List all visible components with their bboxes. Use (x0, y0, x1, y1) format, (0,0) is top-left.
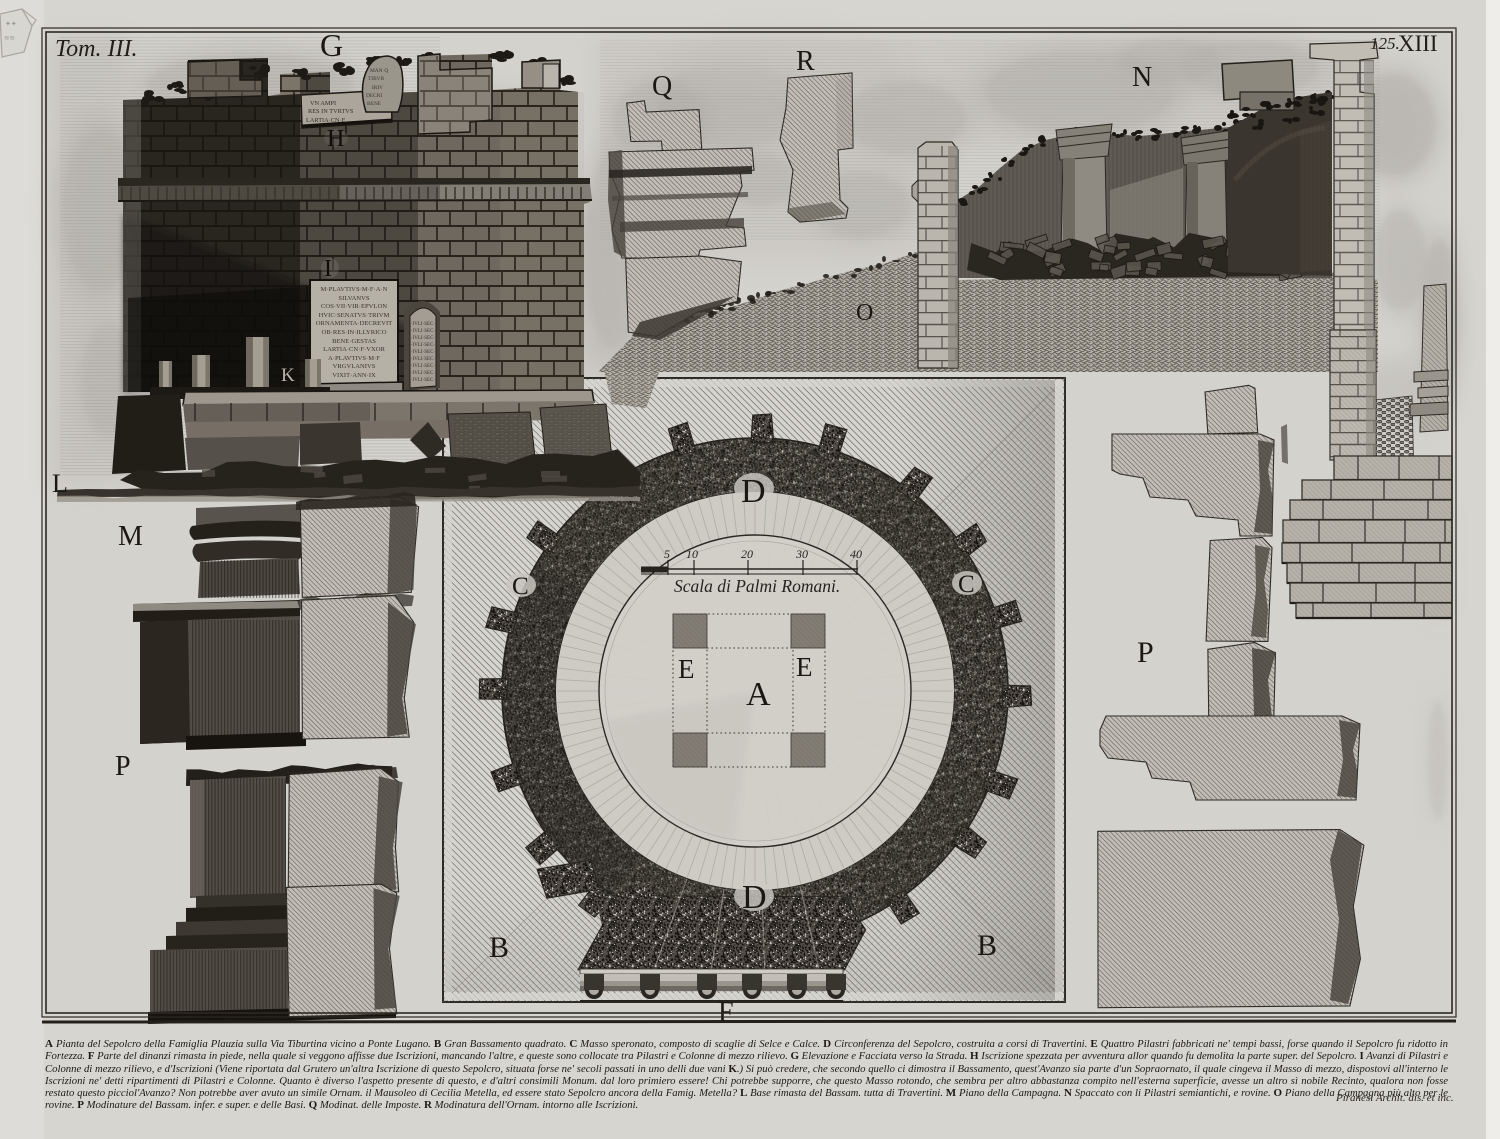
svg-text:M: M (118, 521, 143, 552)
svg-text:SILVANVS: SILVANVS (338, 295, 369, 302)
svg-text:E: E (678, 654, 695, 684)
svg-text:M·PLAVTIVS·M·F·A·N: M·PLAVTIVS·M·F·A·N (321, 286, 388, 293)
svg-text:IRIV: IRIV (372, 85, 383, 91)
svg-text:P: P (115, 751, 131, 782)
svg-text:D: D (742, 879, 767, 916)
svg-text:·IVLI·SEC·: ·IVLI·SEC· (411, 336, 435, 341)
svg-text:·IVLI·SEC·: ·IVLI·SEC· (411, 329, 435, 334)
svg-text:10: 10 (686, 547, 698, 561)
svg-text:·IVLI·SEC·: ·IVLI·SEC· (411, 343, 435, 348)
svg-text:B: B (977, 929, 997, 962)
svg-text:Tom. III.: Tom. III. (55, 36, 137, 62)
svg-text:LARTIA·CN·F·VXOR: LARTIA·CN·F·VXOR (323, 346, 385, 353)
svg-text:≋≋: ≋≋ (4, 35, 15, 42)
svg-text:HVIC·SENATVS·TRIVM: HVIC·SENATVS·TRIVM (319, 312, 390, 319)
svg-text:VIXIT·ANN·IX: VIXIT·ANN·IX (332, 372, 376, 379)
svg-text:E: E (796, 652, 813, 682)
svg-text:OB·RES·IN·ILLYRICO: OB·RES·IN·ILLYRICO (322, 329, 387, 336)
svg-text:20: 20 (741, 547, 753, 561)
svg-text:DECRI: DECRI (366, 93, 382, 99)
svg-text:30: 30 (795, 547, 808, 561)
svg-text:TIBVR: TIBVR (368, 76, 385, 82)
svg-text:·IVLI·SEC·: ·IVLI·SEC· (411, 322, 435, 327)
svg-text:·IVLI·SEC·: ·IVLI·SEC· (411, 378, 435, 383)
svg-text:XIII: XIII (1398, 31, 1438, 56)
svg-text:C: C (512, 573, 529, 600)
svg-text:P: P (1137, 636, 1154, 669)
svg-text:✦✦: ✦✦ (5, 20, 17, 28)
svg-text:L: L (52, 469, 68, 498)
svg-text:A: A (746, 676, 771, 713)
svg-text:125.: 125. (1370, 34, 1400, 53)
svg-text:VN AMPI: VN AMPI (310, 100, 336, 107)
svg-text:BENE: BENE (367, 101, 382, 107)
svg-text:R: R (796, 46, 815, 77)
svg-text:K: K (281, 365, 295, 386)
svg-text:ORNAMENTA·DECREVIT: ORNAMENTA·DECREVIT (316, 320, 392, 327)
svg-text:·IVLI·SEC·: ·IVLI·SEC· (411, 357, 435, 362)
svg-text:C: C (958, 571, 975, 598)
svg-text:RES IN TVRTVS: RES IN TVRTVS (308, 108, 354, 115)
svg-text:A·PLAVTIVS·M·F: A·PLAVTIVS·M·F (328, 355, 380, 362)
svg-text:MAN·Q: MAN·Q (370, 68, 388, 74)
svg-text:VRGVLANIVS: VRGVLANIVS (333, 363, 376, 370)
svg-text:40: 40 (850, 547, 862, 561)
svg-text:5: 5 (664, 547, 670, 561)
svg-text:Scala di Palmi Romani.: Scala di Palmi Romani. (674, 576, 840, 596)
svg-text:·IVLI·SEC·: ·IVLI·SEC· (411, 371, 435, 376)
svg-text:H: H (327, 126, 344, 152)
svg-text:B: B (489, 931, 509, 964)
svg-text:·IVLI·SEC·: ·IVLI·SEC· (411, 364, 435, 369)
svg-text:D: D (741, 473, 766, 510)
svg-text:·IVLI·SEC·: ·IVLI·SEC· (411, 350, 435, 355)
svg-text:I: I (324, 256, 332, 282)
svg-text:COS·VII·VIR·EPVLON: COS·VII·VIR·EPVLON (321, 303, 387, 310)
svg-text:N: N (1132, 62, 1152, 93)
svg-text:BENE·GESTAS: BENE·GESTAS (332, 338, 376, 345)
svg-text:Q: Q (652, 71, 672, 102)
svg-text:O: O (856, 300, 873, 326)
